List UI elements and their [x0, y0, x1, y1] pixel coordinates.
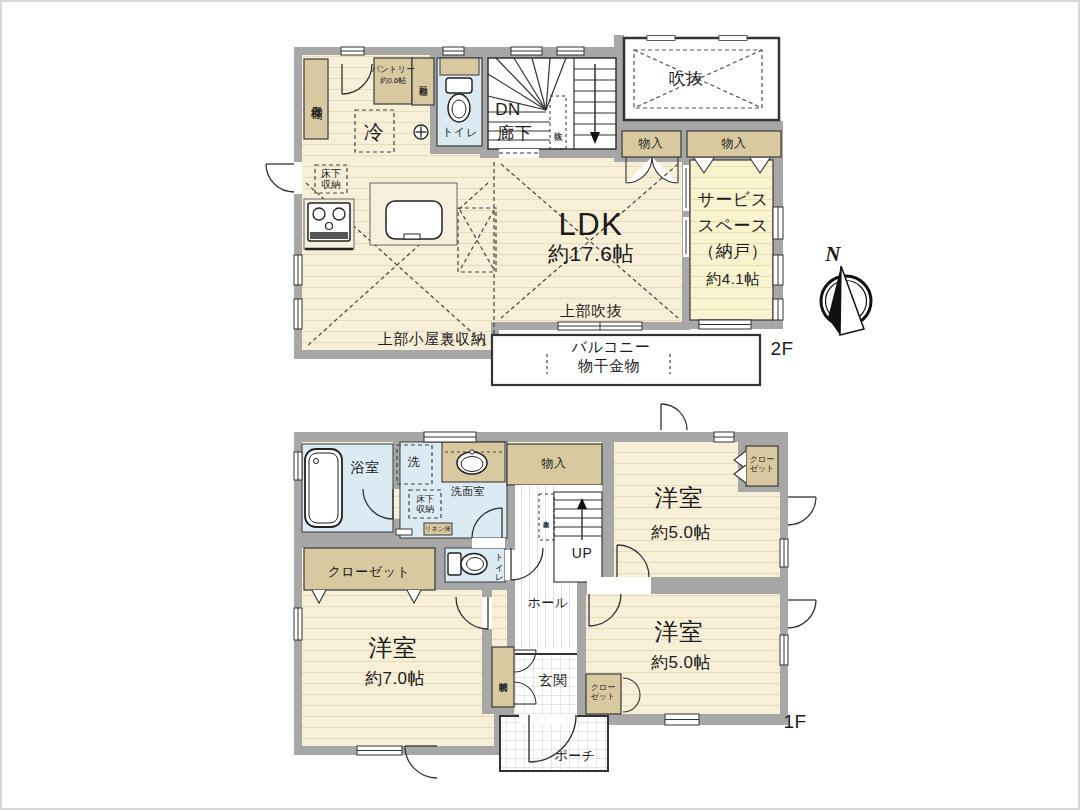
label-underfloor-2f: 床下収納	[320, 168, 342, 190]
label-balcony-1: バルコニー	[572, 339, 651, 356]
label-service-1: サービス	[697, 190, 768, 209]
label-toilet-2f: トイレ	[442, 126, 477, 138]
label-bathroom: 浴室	[351, 460, 380, 476]
label-service-3: （納戸）	[698, 242, 768, 261]
label-toilet-1f: トイレ	[494, 547, 504, 579]
toilet-icon	[446, 78, 472, 122]
label-up: UP	[572, 546, 592, 562]
service-space-floor	[690, 160, 773, 320]
label-closet-5a: クローゼット	[748, 456, 775, 474]
label-room7-size: 約7.0帖	[365, 669, 425, 688]
label-service-2: スペース	[697, 216, 768, 235]
label-floor1: 1F	[783, 711, 806, 732]
label-dish-shelf: 食器棚	[309, 97, 322, 100]
label-upper-void: 上部吹抜	[560, 303, 622, 320]
label-floor2: 2F	[770, 338, 793, 359]
label-washroom: 洗面室	[451, 485, 486, 497]
label-porch: ポーチ	[554, 749, 595, 764]
label-washer: 洗	[408, 456, 421, 469]
label-hall: ホール	[527, 596, 568, 611]
washbasin-icon	[442, 442, 505, 482]
label-entry: 玄関	[539, 673, 568, 689]
toilet-1f-icon	[448, 553, 487, 575]
label-movable-shelf: 可動棚	[418, 80, 428, 83]
hall-floor-c	[554, 485, 602, 492]
label-room5a-size: 約5.0帖	[651, 523, 711, 542]
label-attic: 上部小屋裏収納	[378, 331, 487, 348]
label-linen: リネン庫	[425, 525, 451, 532]
label-underfloor-1f: 床下収納	[415, 494, 434, 514]
label-stair-void: 吹抜	[553, 124, 563, 126]
sink-icon	[386, 201, 442, 239]
label-pantry: パントリー	[371, 65, 414, 75]
label-storage-a: 物入	[639, 137, 664, 150]
floor2-plan	[266, 35, 783, 385]
label-compass-north: N	[825, 243, 841, 267]
label-balcony-2: 物干金物	[578, 358, 640, 375]
outlet-icon	[414, 125, 428, 139]
label-closet-main: クローゼット	[328, 565, 411, 580]
label-ldk: LDK	[559, 208, 624, 243]
label-storage-1f: 物入	[542, 457, 567, 470]
label-storage-b: 物入	[722, 137, 747, 150]
label-corridor: 廊下	[498, 124, 533, 143]
label-closet-small: クローゼット	[589, 684, 616, 702]
label-service-size: 約4.1帖	[706, 271, 759, 288]
label-pantry-size: 約0.6帖	[380, 77, 405, 85]
hall-floor-b	[515, 582, 577, 647]
label-void: 吹抜	[669, 69, 704, 88]
label-room5b-size: 約5.0帖	[651, 653, 711, 672]
floorplan: 食器棚 パントリー 約0.6帖 可動棚 冷 トイレ DN 廊下 吹抜 吹抜 物入…	[0, 0, 1080, 810]
bathtub-icon	[305, 449, 342, 527]
label-room5a: 洋室	[655, 485, 704, 512]
shelf-box	[396, 529, 412, 535]
label-fridge: 冷	[364, 121, 385, 143]
label-room5b: 洋室	[655, 619, 704, 646]
label-dn: DN	[495, 100, 521, 119]
compass-icon	[821, 266, 871, 335]
label-ldk-size: 約17.6帖	[548, 242, 634, 266]
label-room7: 洋室	[369, 635, 418, 662]
